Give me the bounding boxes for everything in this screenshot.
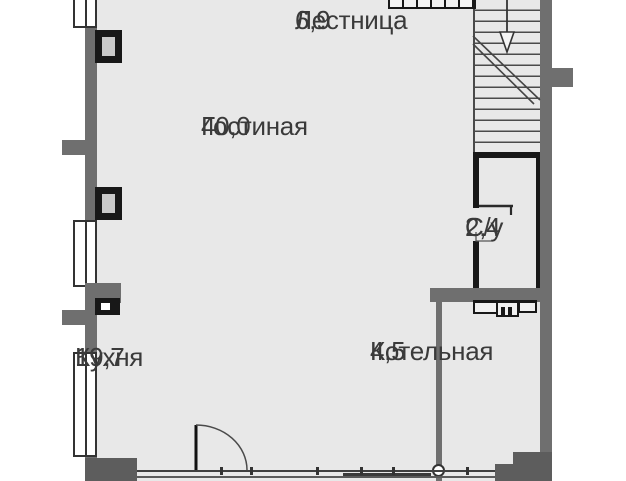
plan-lines-overlay — [0, 0, 626, 481]
room-area: 2,4 — [465, 211, 500, 244]
floor-plan: Лестница 6,9 Гостиная 40,0 С/у 2,4 Кухня… — [0, 0, 626, 481]
stair-direction-arrow — [500, 32, 514, 52]
entry-door-arc — [196, 425, 247, 470]
room-area: 19,7 — [75, 341, 124, 374]
room-area: 40,0 — [201, 110, 250, 143]
room-area: 4,5 — [370, 335, 405, 368]
stair-break-line-2 — [473, 44, 534, 104]
room-area: 6,9 — [295, 4, 330, 37]
